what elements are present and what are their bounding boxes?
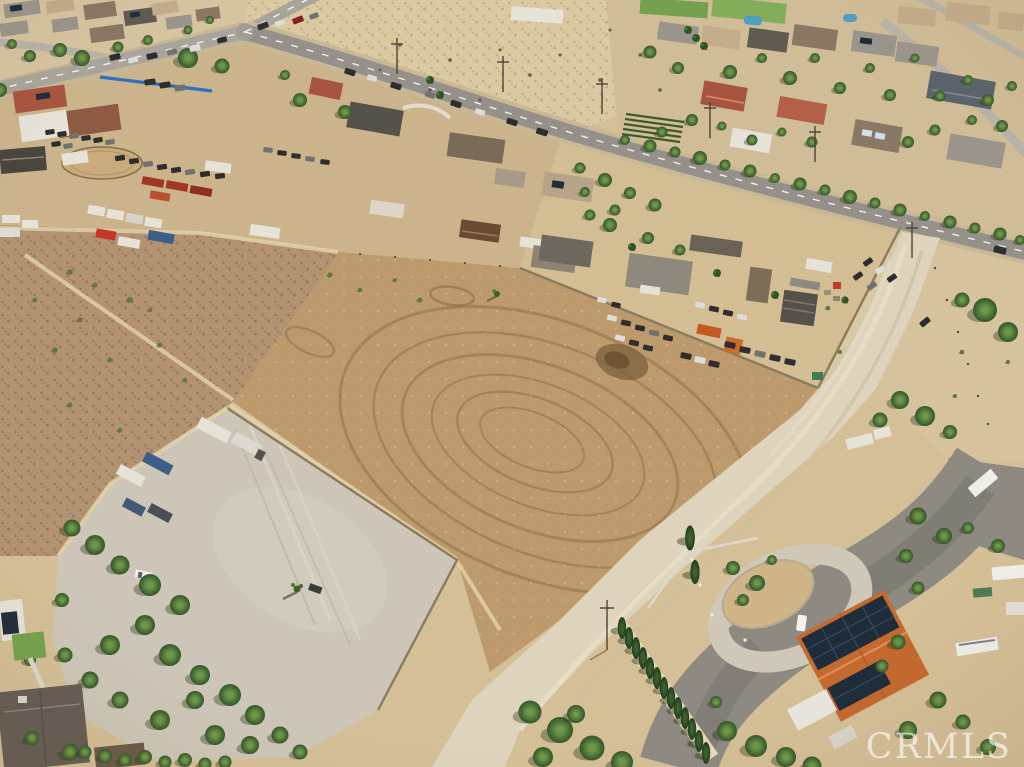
aerial-photo: CRMLS xyxy=(0,0,1024,767)
vignette xyxy=(0,0,1024,767)
